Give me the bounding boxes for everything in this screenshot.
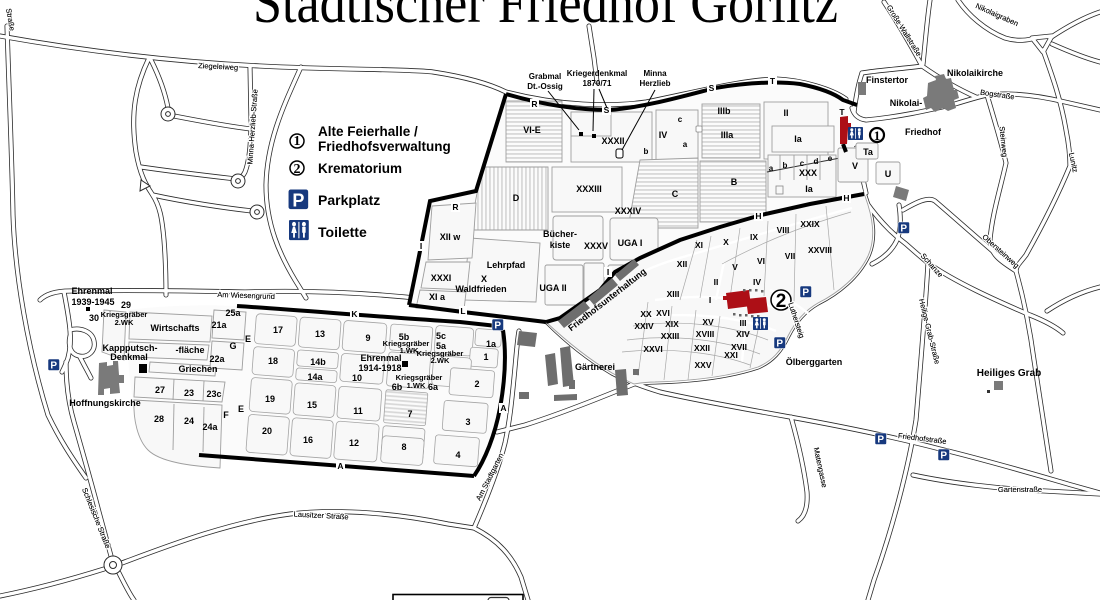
svg-text:T: T (770, 76, 776, 86)
svg-text:XXV: XXV (694, 360, 711, 370)
svg-text:13: 13 (315, 329, 325, 339)
svg-text:18: 18 (268, 356, 278, 366)
svg-text:XVIII: XVIII (696, 329, 714, 339)
svg-text:XXIII: XXIII (661, 331, 679, 341)
svg-text:Wirtschafts: Wirtschafts (151, 323, 200, 333)
svg-text:Krematorium: Krematorium (318, 161, 402, 176)
svg-text:Nikolai-: Nikolai- (890, 98, 923, 108)
svg-text:Ehrenmal: Ehrenmal (71, 286, 112, 296)
svg-text:23: 23 (184, 388, 194, 398)
svg-text:Ölberggarten: Ölberggarten (786, 357, 843, 367)
svg-text:c: c (678, 115, 683, 124)
svg-text:Parkplatz: Parkplatz (318, 192, 380, 208)
svg-text:R: R (452, 202, 458, 212)
svg-text:XXXV: XXXV (584, 241, 608, 251)
svg-text:6a: 6a (428, 382, 439, 392)
svg-text:3: 3 (465, 417, 470, 427)
svg-text:Ta: Ta (863, 147, 874, 157)
svg-text:Lehrpfad: Lehrpfad (487, 260, 526, 270)
svg-text:a: a (683, 140, 688, 149)
svg-text:1939-1945: 1939-1945 (71, 297, 114, 307)
svg-text:E: E (245, 334, 251, 344)
svg-text:XXXIII: XXXIII (576, 184, 602, 194)
svg-text:Städtischer Friedhof Görlitz: Städtischer Friedhof Görlitz (253, 0, 838, 35)
svg-text:R: R (531, 99, 537, 109)
svg-text:-fläche: -fläche (175, 345, 204, 355)
svg-text:27: 27 (155, 385, 165, 395)
svg-text:28: 28 (154, 414, 164, 424)
svg-text:2: 2 (294, 162, 301, 177)
svg-text:X: X (723, 237, 729, 247)
svg-text:H: H (755, 211, 761, 221)
svg-text:XXIX: XXIX (800, 219, 820, 229)
svg-text:25a: 25a (225, 308, 241, 318)
svg-text:XXXI: XXXI (431, 273, 452, 283)
svg-text:XXXIV: XXXIV (615, 206, 642, 216)
svg-text:XXIV: XXIV (634, 321, 654, 331)
svg-text:22a: 22a (209, 354, 225, 364)
svg-text:H: H (843, 193, 849, 203)
svg-text:12: 12 (349, 438, 359, 448)
svg-text:XI: XI (695, 240, 703, 250)
svg-text:24: 24 (184, 416, 194, 426)
svg-text:XXXII: XXXII (601, 136, 624, 146)
svg-text:XIV: XIV (736, 329, 750, 339)
svg-text:17: 17 (273, 325, 283, 335)
svg-text:I: I (420, 241, 422, 251)
svg-text:c: c (800, 159, 805, 168)
svg-text:9: 9 (365, 333, 370, 343)
svg-text:8: 8 (401, 442, 406, 452)
svg-text:6b: 6b (392, 382, 403, 392)
svg-text:Denkmal: Denkmal (110, 352, 148, 362)
svg-text:Finstertor: Finstertor (866, 75, 909, 85)
svg-text:Dt.-Ossig: Dt.-Ossig (527, 82, 563, 91)
svg-text:Nikolaikirche: Nikolaikirche (947, 68, 1003, 78)
svg-text:Friedhofsverwaltung: Friedhofsverwaltung (318, 139, 451, 154)
svg-text:L: L (460, 306, 465, 316)
svg-text:IV: IV (659, 130, 668, 140)
svg-text:19: 19 (265, 394, 275, 404)
svg-text:23c: 23c (206, 389, 221, 399)
svg-text:G: G (229, 341, 236, 351)
svg-text:11: 11 (353, 406, 363, 416)
svg-text:D: D (513, 193, 520, 203)
svg-text:15: 15 (307, 400, 317, 410)
svg-text:I: I (709, 295, 711, 305)
svg-text:T: T (839, 107, 845, 117)
svg-text:Ehrenmal: Ehrenmal (360, 353, 401, 363)
svg-text:2: 2 (776, 291, 787, 312)
svg-text:7: 7 (407, 409, 412, 419)
svg-text:VI-E: VI-E (523, 125, 541, 135)
svg-text:XXII: XXII (694, 343, 710, 353)
svg-text:XVI: XVI (656, 308, 670, 318)
svg-text:1.WK: 1.WK (407, 381, 426, 390)
svg-text:Waldfrieden: Waldfrieden (455, 284, 506, 294)
svg-text:VI: VI (757, 256, 765, 266)
svg-text:P: P (292, 190, 304, 210)
svg-text:XIII: XIII (667, 289, 680, 299)
svg-text:Alte Feierhalle /: Alte Feierhalle / (318, 124, 418, 139)
svg-text:Toilette: Toilette (318, 224, 367, 240)
svg-text:Hoffnungskirche: Hoffnungskirche (69, 398, 141, 408)
svg-text:14a: 14a (307, 372, 323, 382)
svg-text:B: B (731, 177, 738, 187)
svg-text:S: S (709, 83, 715, 93)
svg-text:b: b (644, 147, 649, 156)
svg-text:Gartenstraße: Gartenstraße (998, 485, 1042, 494)
svg-text:kiste: kiste (550, 240, 571, 250)
svg-text:1a: 1a (486, 339, 497, 349)
svg-text:I: I (607, 267, 609, 277)
svg-text:Herzlieb: Herzlieb (639, 79, 670, 88)
svg-text:X: X (481, 274, 487, 284)
svg-text:II: II (714, 277, 719, 287)
svg-text:1: 1 (874, 128, 881, 143)
svg-text:Ia: Ia (794, 134, 803, 144)
svg-text:V: V (852, 161, 858, 171)
svg-text:II: II (783, 108, 788, 118)
svg-text:10: 10 (352, 373, 362, 383)
svg-text:Gärtnerei: Gärtnerei (575, 362, 615, 372)
svg-text:Minna: Minna (643, 69, 667, 78)
svg-text:Friedhof: Friedhof (905, 127, 942, 137)
svg-text:IIIb: IIIb (718, 106, 732, 116)
svg-text:III: III (739, 318, 746, 328)
svg-text:IX: IX (750, 232, 758, 242)
svg-text:E: E (238, 404, 244, 414)
svg-text:2: 2 (474, 379, 479, 389)
svg-text:U: U (885, 169, 892, 179)
svg-text:a: a (769, 164, 774, 173)
svg-text:2.WK: 2.WK (431, 356, 450, 365)
svg-text:IIIa: IIIa (721, 130, 735, 140)
svg-text:XII: XII (677, 259, 687, 269)
svg-text:Bücher-: Bücher- (543, 229, 577, 239)
svg-text:16: 16 (303, 435, 313, 445)
svg-text:K: K (351, 309, 358, 319)
svg-text:b: b (783, 161, 788, 170)
svg-text:14b: 14b (310, 357, 326, 367)
svg-text:UGA II: UGA II (539, 283, 566, 293)
svg-text:5c: 5c (436, 331, 446, 341)
svg-text:1: 1 (294, 134, 301, 149)
svg-text:30: 30 (89, 313, 99, 323)
svg-text:C: C (672, 189, 679, 199)
svg-text:XXX: XXX (799, 168, 817, 178)
svg-text:d: d (814, 157, 819, 166)
svg-text:XIX: XIX (665, 319, 679, 329)
svg-text:1870/71: 1870/71 (583, 79, 612, 88)
svg-text:XXVIII: XXVIII (808, 245, 832, 255)
svg-text:XXI: XXI (724, 350, 738, 360)
svg-text:A: A (337, 461, 343, 471)
svg-text:e: e (828, 154, 833, 163)
svg-text:Kriegerdenkmal: Kriegerdenkmal (567, 69, 627, 78)
svg-text:1914-1918: 1914-1918 (358, 363, 401, 373)
svg-text:Grabmal: Grabmal (529, 72, 561, 81)
svg-text:XV: XV (702, 317, 714, 327)
svg-text:20: 20 (262, 426, 272, 436)
svg-text:A: A (500, 403, 506, 413)
svg-text:IV: IV (753, 277, 761, 287)
svg-text:Ia: Ia (805, 184, 814, 194)
svg-text:VII: VII (785, 251, 795, 261)
svg-text:XI a: XI a (429, 292, 446, 302)
svg-text:1: 1 (483, 352, 488, 362)
svg-text:Griechen: Griechen (178, 364, 217, 374)
svg-text:XX: XX (640, 309, 652, 319)
svg-text:XXVI: XXVI (643, 344, 662, 354)
svg-text:4: 4 (455, 450, 460, 460)
svg-text:XII w: XII w (440, 232, 462, 242)
svg-text:VIII: VIII (777, 225, 790, 235)
svg-text:UGA I: UGA I (618, 238, 643, 248)
svg-text:24a: 24a (202, 422, 218, 432)
svg-text:F: F (223, 410, 229, 420)
svg-text:21a: 21a (211, 320, 227, 330)
svg-text:V: V (732, 262, 738, 272)
svg-text:29: 29 (121, 300, 131, 310)
svg-text:2.WK: 2.WK (115, 318, 134, 327)
svg-text:Heiliges Grab: Heiliges Grab (977, 368, 1041, 379)
